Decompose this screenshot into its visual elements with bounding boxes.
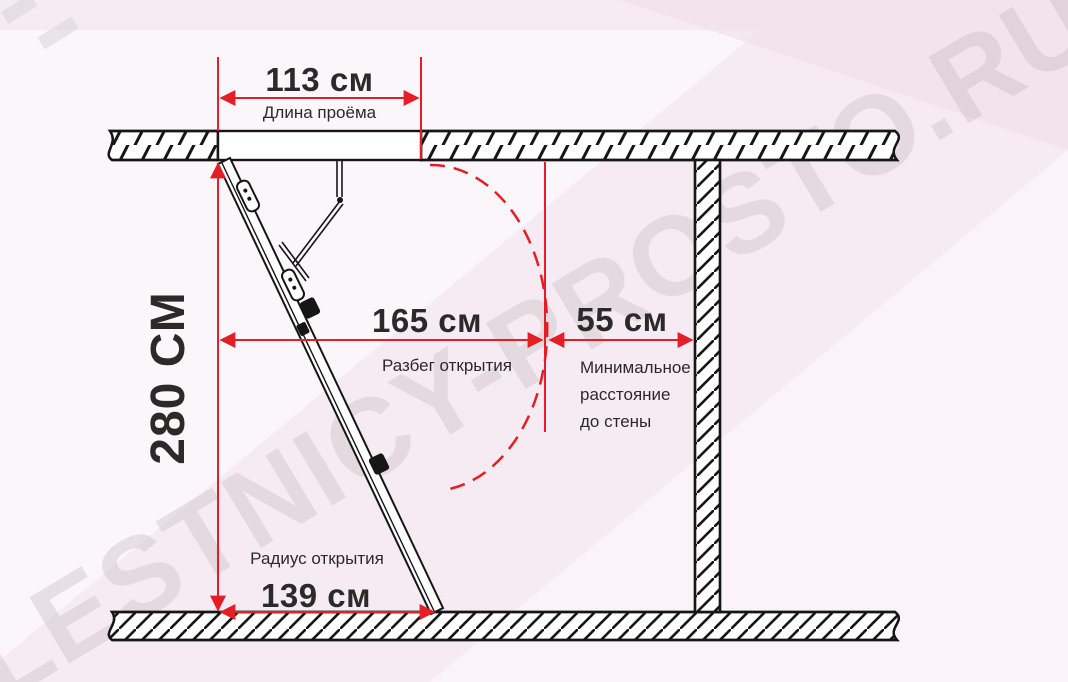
dim-label-wall-clearance: Минимальное расстояние до стены [580, 354, 688, 436]
dim-label-opening-radius: Радиус открытия [207, 549, 427, 569]
dim-value-opening-length: 113 см [218, 61, 421, 99]
dim-label-swing-span: Разбег открытия [337, 356, 557, 376]
wall-hatch [695, 160, 720, 612]
floor-hatch [109, 612, 899, 640]
dim-value-swing-span: 165 см [327, 302, 527, 340]
ceiling-right-hatch [421, 131, 899, 160]
dim-value-opening-radius: 139 см [216, 577, 416, 615]
ceiling-left-hatch [109, 131, 218, 160]
dim-value-wall-clearance: 55 см [552, 301, 692, 339]
dim-value-ceiling-height: 280 СМ [141, 278, 193, 478]
dim-label-opening-length: Длина проёма [218, 103, 421, 123]
attic-ladder-dimensions-diagram: LESTNICY-PROSTO.RU [0, 0, 1068, 682]
hatch-opening-box [218, 131, 421, 160]
